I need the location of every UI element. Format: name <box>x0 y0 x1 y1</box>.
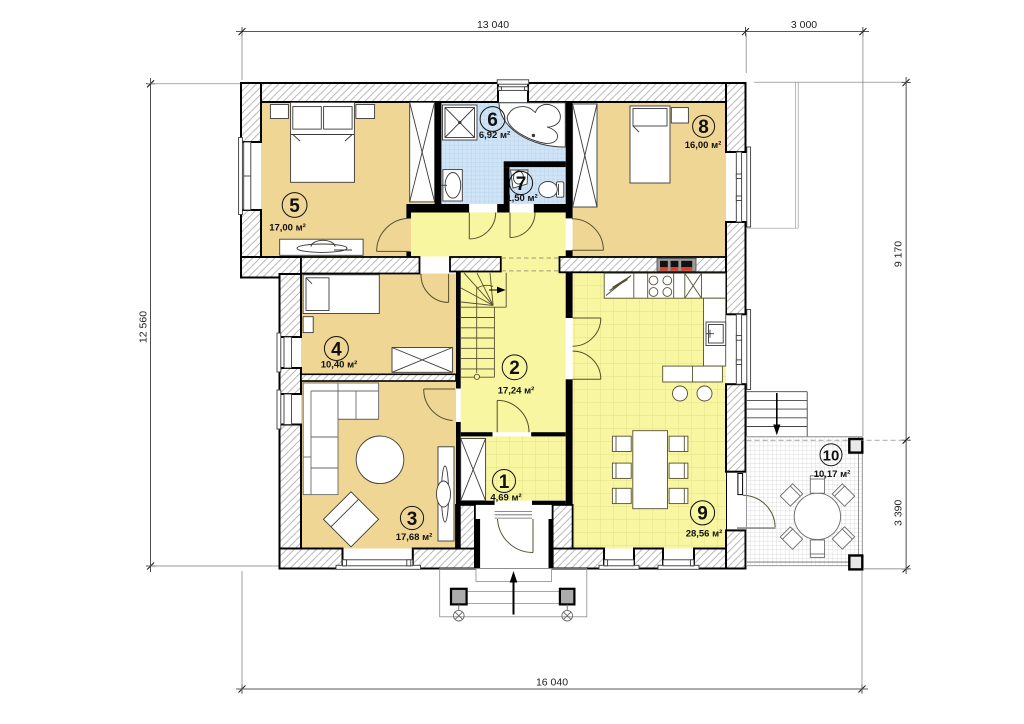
svg-text:1,50 м²: 1,50 м² <box>506 193 537 204</box>
svg-text:17,00 м²: 17,00 м² <box>269 223 306 234</box>
svg-text:3: 3 <box>407 509 418 530</box>
svg-text:17,68 м²: 17,68 м² <box>396 532 433 543</box>
svg-text:6,92 м²: 6,92 м² <box>479 130 510 141</box>
svg-text:17,24 м²: 17,24 м² <box>498 386 535 397</box>
svg-text:5: 5 <box>289 196 300 217</box>
svg-text:7: 7 <box>516 174 527 195</box>
svg-text:3 390: 3 390 <box>893 500 905 526</box>
svg-text:1: 1 <box>499 472 510 493</box>
svg-text:9 170: 9 170 <box>893 241 905 267</box>
svg-text:16 040: 16 040 <box>536 677 568 689</box>
svg-text:8: 8 <box>698 117 709 138</box>
svg-text:16,00 м²: 16,00 м² <box>685 140 722 151</box>
svg-text:28,56 м²: 28,56 м² <box>686 529 723 540</box>
svg-text:10,17 м²: 10,17 м² <box>814 469 851 480</box>
svg-text:2: 2 <box>509 358 520 379</box>
svg-text:9: 9 <box>697 504 708 525</box>
svg-text:13 040: 13 040 <box>477 19 509 31</box>
svg-text:12 560: 12 560 <box>138 311 150 343</box>
svg-text:6: 6 <box>487 110 498 131</box>
svg-text:4,69 м²: 4,69 м² <box>490 493 521 504</box>
svg-text:3 000: 3 000 <box>791 19 817 31</box>
svg-text:4: 4 <box>331 339 342 360</box>
svg-text:10,40 м²: 10,40 м² <box>321 360 358 371</box>
svg-text:10: 10 <box>823 447 840 464</box>
